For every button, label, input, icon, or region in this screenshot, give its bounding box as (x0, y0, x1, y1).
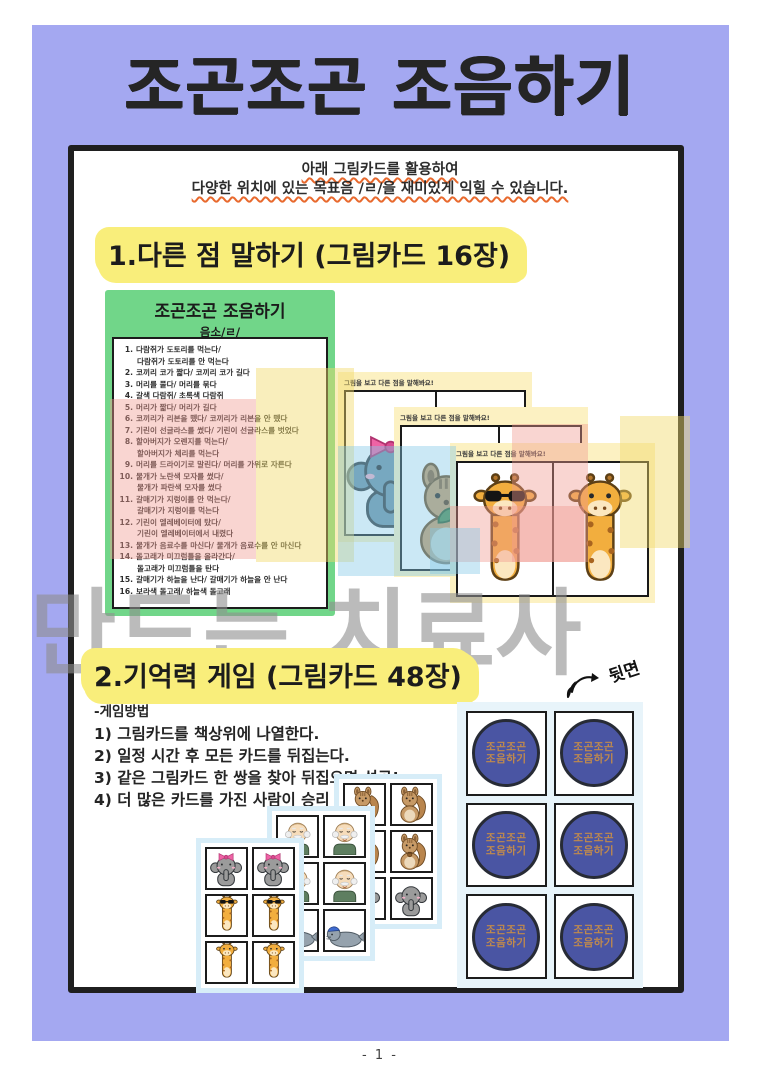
memory-card-giraffe-icon (205, 941, 248, 984)
page-title: 조곤조곤 조음하기 (32, 36, 729, 128)
game-step-2: 2) 일정 시간 후 모든 카드를 뒤집는다. (94, 745, 399, 767)
intro-line-2: 다양한 위치에 있는 목표음 /ㄹ/을 재미있게 익힐 수 있습니다. (100, 180, 660, 199)
game-step-1: 1) 그림카드를 책상위에 나열한다. (94, 723, 399, 745)
card-back-circle: 조곤조곤조음하기 (560, 719, 628, 787)
game-method-title: -게임방법 (94, 700, 399, 720)
card-back-circle: 조곤조곤조음하기 (560, 811, 628, 879)
memory-card-elephant-icon (390, 877, 433, 920)
memory-card-grandpa-icon (323, 862, 366, 905)
list-item: 15.갈매기가 하늘을 난다/ 갈매기가 하늘을 안 난다 (118, 574, 323, 586)
card-back: 조곤조곤조음하기 (554, 803, 635, 888)
memory-card-seal-icon (323, 909, 366, 952)
card-backs-grid: 조곤조곤조음하기 조곤조곤조음하기 조곤조곤조음하기 조곤조곤조음하기 조곤조곤… (466, 711, 634, 979)
list-item: 12.기린이 엘레베이터에 탔다/기린이 엘레베이터에서 내렸다 (118, 517, 323, 540)
list-item: 11.갈매기가 지렁이를 안 먹는다/갈매기가 지렁이를 먹는다 (118, 494, 323, 517)
memory-card-squirrel-acorn-icon (390, 830, 433, 873)
card-back: 조곤조곤조음하기 (554, 894, 635, 979)
picture-card-header: 그림을 보고 다른 점을 말해봐요! (344, 377, 526, 387)
picture-card-header: 그림을 보고 다른 점을 말해봐요! (400, 412, 582, 422)
section2-heading: 2.기억력 게임 (그림카드 48장) (84, 650, 476, 700)
list-item: 16.보라색 돌고래/ 하늘색 돌고래 (118, 586, 323, 598)
section2-heading-wrap: 2.기억력 게임 (그림카드 48장) (84, 650, 476, 700)
card-back: 조곤조곤조음하기 (466, 711, 547, 796)
card-back: 조곤조곤조음하기 (466, 803, 547, 888)
memory-card-sheet-front (196, 838, 304, 993)
list-item: 1.다람쥐가 도토리를 먹는다/다람쥐가 도토리를 안 먹는다 (118, 344, 323, 367)
memory-card-giraffe-sunglasses-icon (205, 894, 248, 937)
card-back-circle: 조곤조곤조음하기 (472, 903, 540, 971)
card-back: 조곤조곤조음하기 (554, 711, 635, 796)
memory-card-elephant-bow-icon (252, 847, 295, 890)
card-backs-sheet: 조곤조곤조음하기 조곤조곤조음하기 조곤조곤조음하기 조곤조곤조음하기 조곤조곤… (457, 702, 643, 988)
picture-card-header: 그림을 보고 다른 점을 말해봐요! (456, 448, 649, 458)
document-page: 조곤조곤 조음하기 아래 그림카드를 활용하여 다양한 위치에 있는 목표음 /… (0, 0, 760, 1074)
list-item: 10.물개가 노란색 모자를 썼다/물개가 파란색 모자를 썼다 (118, 471, 323, 494)
memory-card-elephant-bow-icon (205, 847, 248, 890)
card-back: 조곤조곤조음하기 (466, 894, 547, 979)
picture-card-giraffe: 그림을 보고 다른 점을 말해봐요! (450, 443, 655, 603)
giraffe-sunglasses-icon (458, 463, 552, 595)
word-list-card: 조곤조곤 조음하기 음소/ㄹ/ 1.다람쥐가 도토리를 먹는다/다람쥐가 도토리… (105, 290, 335, 616)
list-item: 5.머리가 짧다/ 머리가 길다 (118, 402, 323, 414)
card-back-circle: 조곤조곤조음하기 (472, 719, 540, 787)
list-item: 9.머리를 드라이기로 말린다/ 머리를 가위로 자른다 (118, 459, 323, 471)
list-item: 2.코끼리 코가 짧다/ 코끼리 코가 길다 (118, 367, 323, 379)
intro-text: 아래 그림카드를 활용하여 다양한 위치에 있는 목표음 /ㄹ/을 재미있게 익… (100, 161, 660, 199)
memory-card-grandpa-icon (323, 815, 366, 858)
section1-heading-wrap: 1.다른 점 말하기 (그림카드 16장) (98, 229, 524, 279)
memory-card-giraffe-sunglasses-icon (252, 894, 295, 937)
card-back-circle: 조곤조곤조음하기 (560, 903, 628, 971)
card-back-circle: 조곤조곤조음하기 (472, 811, 540, 879)
section1-heading: 1.다른 점 말하기 (그림카드 16장) (98, 229, 524, 279)
list-item: 8.할아버지가 오렌지를 먹는다/할아버지가 체리를 먹는다 (118, 436, 323, 459)
memory-card-giraffe-icon (252, 941, 295, 984)
list-item: 4.갈색 다람쥐/ 초록색 다람쥐 (118, 390, 323, 402)
list-item: 7.기린이 선글라스를 썼다/ 기린이 선글라스를 벗었다 (118, 425, 323, 437)
list-item: 13.물개가 음료수를 마신다/ 물개가 음료수를 안 마신다 (118, 540, 323, 552)
memory-card-squirrel-icon (390, 783, 433, 826)
intro-line-1: 아래 그림카드를 활용하여 (100, 161, 660, 180)
word-list-title: 조곤조곤 조음하기 (105, 297, 335, 322)
list-item: 3.머리를 풀다/ 머리를 묶다 (118, 379, 323, 391)
list-item: 6.코끼리가 리본을 뗐다/ 코끼리가 리본을 안 뗐다 (118, 413, 323, 425)
page-number: - 1 - (0, 1048, 760, 1063)
list-item: 14.돌고래가 미끄럼틀을 올라간다/돌고래가 미끄럼틀을 탄다 (118, 551, 323, 574)
curved-arrow-icon (564, 670, 606, 704)
giraffe-icon (552, 463, 648, 595)
diff-list: 1.다람쥐가 도토리를 먹는다/다람쥐가 도토리를 안 먹는다2.코끼리 코가 … (112, 337, 328, 609)
